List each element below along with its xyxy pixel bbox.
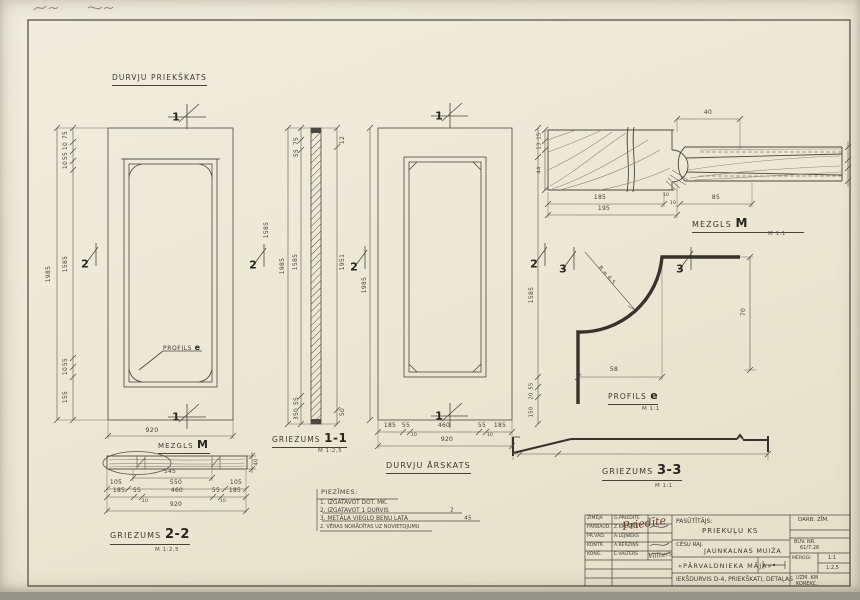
dimension-label: 55 <box>402 423 410 429</box>
dimension-label: 920 <box>145 427 158 434</box>
dimension-label: 10 <box>670 202 676 207</box>
scale-label-3-3: M 1:1 <box>655 483 673 489</box>
titleblock-row: PR.VAD.A.LEJNIEKS <box>585 534 672 543</box>
drawing-title-front-view: DURVJU PRIEKŠKATS <box>112 74 207 86</box>
dimension-label: 15 <box>538 133 543 140</box>
dimension-label: 10 <box>63 367 69 375</box>
note-item: 2. IZGATAVOT 1 DURVIS <box>320 509 389 515</box>
section-label-1-1: GRIEZUMS 1-1 <box>272 432 347 448</box>
dimension-label: 1585 <box>264 222 270 238</box>
dimension-label: 10 <box>487 434 493 439</box>
titleblock-sheet-title: IEKŠDURVIS D-4, PRIEKŠKATI, DETAĻAS <box>676 577 793 583</box>
dimension-label: 1951 <box>340 254 346 270</box>
node-label-m-callout: MEZGLS M <box>158 439 210 454</box>
dimension-label: 550 <box>170 480 182 486</box>
pencil-marks <box>34 6 113 10</box>
dimension-label: 920 <box>441 437 453 443</box>
titleblock-name: A.BĒRZIŅŠ <box>614 544 639 549</box>
section-marker: 2 <box>249 260 257 271</box>
dimension-label: 2 <box>450 508 454 514</box>
wood-grain <box>109 459 245 467</box>
dimension-label: 1585 <box>529 287 535 303</box>
drawing-linework <box>0 0 860 600</box>
dimension-label: 105 <box>230 480 242 486</box>
section-marker: 2 <box>81 259 89 270</box>
dimension-label: 12 <box>340 136 346 144</box>
titleblock-scale-2: 1:2,5 <box>826 566 839 571</box>
titleblock-role: KONTR. <box>587 544 604 549</box>
titleblock-scales-label: MĒROGI <box>792 557 811 562</box>
dimension-label: 1985 <box>280 258 286 274</box>
scale-label-profile-e: M 1:1 <box>642 406 660 412</box>
dimension-label: 40 <box>704 110 712 116</box>
titleblock-role: PĀRBAUD. <box>587 526 611 531</box>
dimension-label: 545 <box>164 469 176 475</box>
note-item: 1. IZGATAVOT DOT. MK. <box>320 501 388 507</box>
dimension-label: 185 <box>229 488 241 494</box>
section-marker: 2 <box>530 259 538 270</box>
dimension-label: 150 <box>530 407 535 417</box>
dimension-label: 44 <box>538 167 543 174</box>
dimension-label: 10 <box>411 434 417 439</box>
drawing-sheet: DURVJU PRIEKŠKATS DURVJU ĀRSKATS GRIEZUM… <box>0 0 860 600</box>
titleblock-building: «PĀRVALDNIEKA MĀJA» <box>678 563 772 570</box>
dimension-label: 350 <box>294 408 300 420</box>
drawing-title-outside-view: DURVJU ĀRSKATS <box>386 462 471 474</box>
section-label-3-3: GRIEZUMS 3-3 <box>602 464 682 481</box>
scale-label-1-1: M 1:2,5 <box>318 448 342 454</box>
dimension-label: 55 <box>478 423 486 429</box>
node-m-detail <box>548 127 842 192</box>
dimension-label: 185 <box>384 423 396 429</box>
titleblock-object: JAUNKALNAS MUIŽA <box>704 548 782 555</box>
dimension-label: 10 <box>63 161 69 169</box>
section-marker: 3 <box>676 264 684 275</box>
titleblock-role: KONS. <box>587 553 601 558</box>
dimension-label: 75 <box>63 131 69 139</box>
profile-e-reference: PROFILS e <box>163 344 201 352</box>
section-marker: 3 <box>559 264 567 275</box>
dimension-label: 55 <box>63 358 69 366</box>
dimension-label: 20 <box>530 393 535 400</box>
dimension-label: 105 <box>110 480 122 486</box>
dimension-label: 10 <box>220 500 226 505</box>
dimension-label: 460 <box>171 488 183 494</box>
titleblock-client: PRIEKUĻU KS <box>702 528 758 535</box>
section-marker: 1 <box>172 412 180 423</box>
dimension-label: 50 <box>340 408 346 416</box>
dimension-label: 55 <box>212 488 220 494</box>
section-3-3-profile <box>513 435 768 456</box>
note-item: 2. VĒRAS NORĀDĪTAS UZ NOVIETOJUMU <box>320 525 419 530</box>
dimension-label: 1585 <box>293 254 299 270</box>
dimension-label: 55 <box>133 488 141 494</box>
titleblock-role: ZĪMĒJA <box>587 517 603 522</box>
dimension-label: 45 <box>464 516 472 522</box>
titleblock-footer-2: KOREKC. <box>796 582 818 587</box>
dimension-label: 55 <box>63 152 69 160</box>
dimension-label: 10 <box>63 142 69 150</box>
scale-label-node-m: M 1:1 <box>768 231 786 237</box>
section-marker: 1 <box>172 112 180 123</box>
profile-label-e: PROFILS e <box>608 390 658 405</box>
sheet-frame <box>28 20 850 586</box>
dimension-label: 10 <box>663 194 669 199</box>
section-marker: 2 <box>350 262 358 273</box>
dimension-label: 13 <box>538 143 543 150</box>
section-marker: 1 <box>435 111 443 122</box>
dimension-label: 1585 <box>63 256 69 272</box>
dimension-label: 195 <box>598 206 610 212</box>
dimension-label: 920 <box>170 502 182 508</box>
door2-elevation <box>378 128 512 420</box>
dimension-label: 1985 <box>46 266 52 282</box>
dimension-label: 460 <box>438 423 450 429</box>
dimension-label: 85 <box>712 195 720 201</box>
section-label-2-2: GRIEZUMS 2-2 <box>110 528 190 545</box>
dimension-label: 75 <box>294 137 300 145</box>
titleblock-name: E.VALTERS <box>614 553 638 558</box>
section-1-1-strip <box>311 128 321 424</box>
dimension-label: 55 <box>530 383 535 390</box>
titleblock-client-label: PASŪTĪTĀJS: <box>676 519 712 525</box>
note-item: 3. METĀLA VIEGLO BEŅU LATA <box>320 517 408 523</box>
scale-label-2-2: M 1:2,5 <box>155 547 179 553</box>
dimension-label: 185 <box>494 423 506 429</box>
dimension-label: 70 <box>741 308 747 316</box>
titleblock-drawing-type: DARB. ZĪM. <box>798 518 829 524</box>
dimension-label: 55 <box>294 149 300 157</box>
dimension-label: 58 <box>610 367 618 373</box>
dimension-label: 1985 <box>362 277 368 293</box>
stage-mark-icon <box>773 564 775 566</box>
section-marker: 1 <box>435 411 443 422</box>
dimension-label: 40 <box>255 459 260 466</box>
dimension-label: 185 <box>594 195 606 201</box>
door1-elevation <box>108 128 233 420</box>
titleblock-name: A.LEJNIEKS <box>614 535 639 540</box>
dimension-label: 155 <box>63 391 69 403</box>
dimension-label: 10 <box>142 500 148 505</box>
dimension-label: 55 <box>294 397 300 405</box>
dimension-label: 185 <box>113 488 125 494</box>
node-label-m: MEZGLS M <box>692 217 804 233</box>
titleblock-role: PR.VAD. <box>587 535 605 540</box>
notes-heading: PIEZĪMES: <box>321 489 358 496</box>
titleblock-buildno: 61/7.26 <box>800 546 819 551</box>
titleblock-district: CĒSU RAJ. <box>676 543 703 549</box>
titleblock-scale-1: 1:1 <box>828 556 836 561</box>
